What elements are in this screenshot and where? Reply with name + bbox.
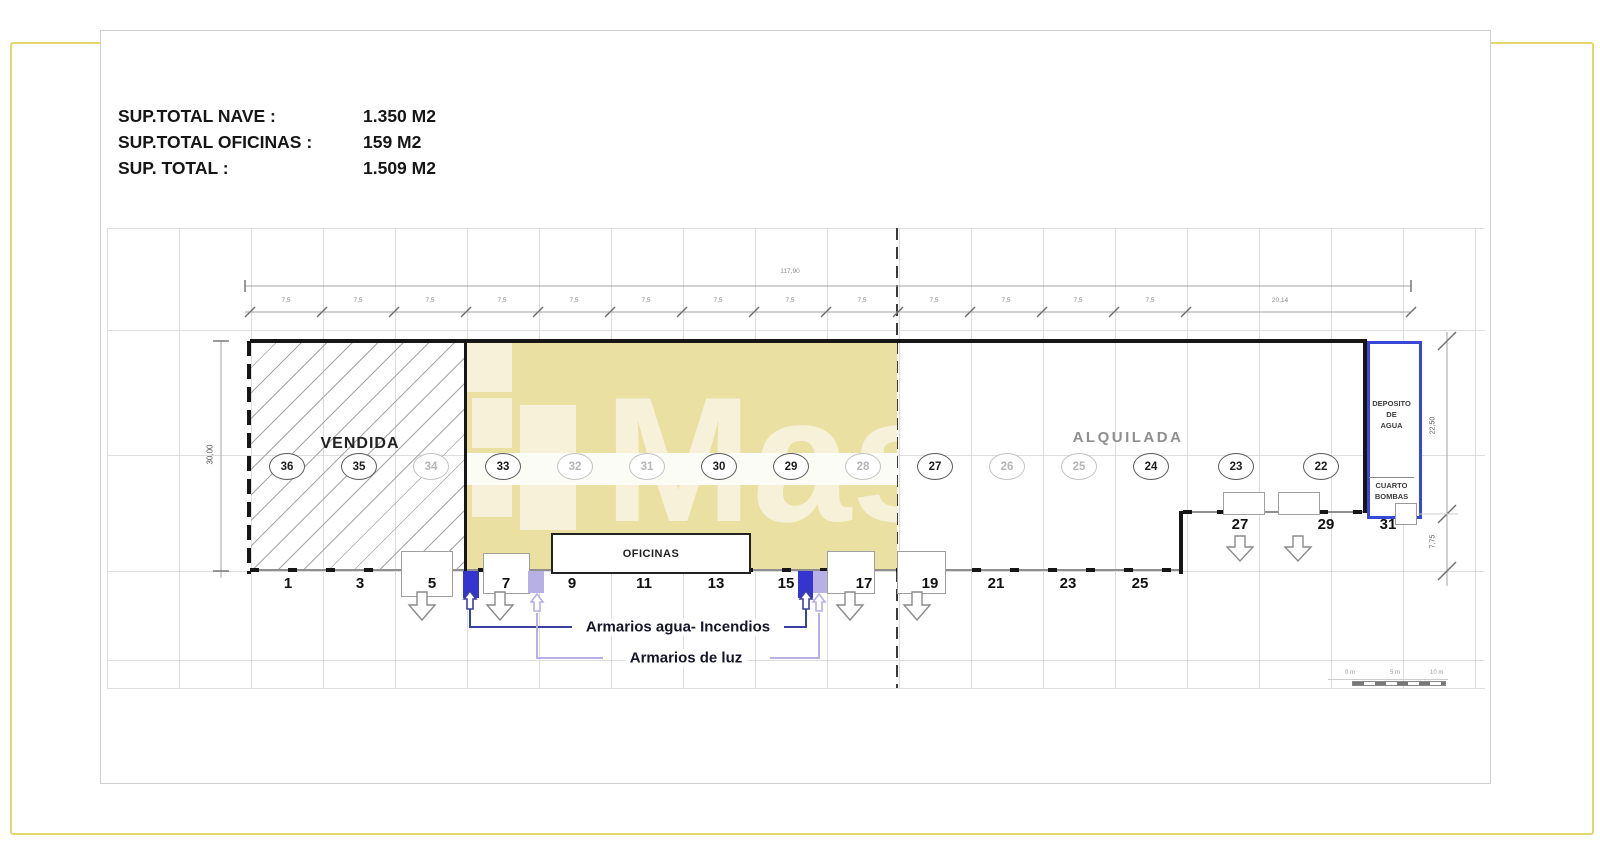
scale-bar-line [1328,679,1448,680]
door-arrow-down-icon [1285,536,1311,561]
plan-overlay [0,0,1600,859]
total-width-dim: 117,90 [780,268,799,275]
floor-plan-page: SUP.TOTAL NAVE : 1.350 M2 SUP.TOTAL OFIC… [0,0,1600,859]
legend-arrow-up-icon [800,591,812,609]
door-arrow-down-icon [837,592,863,620]
scale-label: 5 m [1390,670,1400,676]
scale-label: 10 m [1430,670,1443,676]
scale-label: 0 m [1345,670,1355,676]
legend-agua-label: Armarios agua- Incendios [582,619,774,636]
scale-bar [1352,681,1446,686]
legend-arrow-up-icon [813,594,825,611]
height-upper-dim: 22,50 [1429,417,1436,435]
door-arrow-down-icon [1227,536,1253,561]
door-arrow-down-icon [409,592,435,620]
door-arrow-down-icon [487,592,513,620]
height-lower-dim: 7,75 [1429,535,1436,549]
door-arrow-down-icon [904,592,930,620]
height-total-dim: 30,00 [206,444,215,464]
legend-arrow-up-icon [531,594,543,611]
legend-arrow-up-icon [464,591,476,609]
legend-luz-label: Armarios de luz [626,650,747,667]
